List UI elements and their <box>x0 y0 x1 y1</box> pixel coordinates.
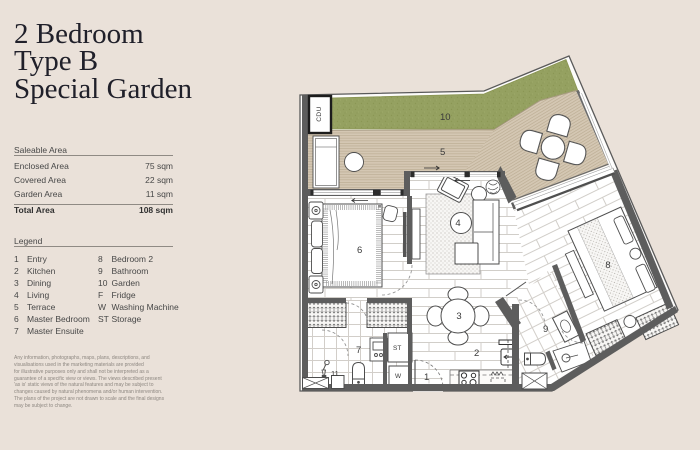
svg-text:6: 6 <box>357 245 362 256</box>
svg-text:CDU: CDU <box>316 106 323 122</box>
svg-text:5: 5 <box>440 147 445 158</box>
svg-text:9: 9 <box>543 324 548 335</box>
svg-text:11: 11 <box>331 369 339 378</box>
svg-text:1: 1 <box>424 372 429 383</box>
svg-text:ST: ST <box>393 345 401 352</box>
svg-text:3: 3 <box>456 311 461 322</box>
svg-text:8: 8 <box>605 260 610 271</box>
svg-text:10: 10 <box>440 112 451 123</box>
svg-text:4: 4 <box>455 218 460 229</box>
svg-text:7: 7 <box>356 345 361 356</box>
svg-text:W: W <box>395 373 402 380</box>
svg-text:2: 2 <box>474 348 479 359</box>
